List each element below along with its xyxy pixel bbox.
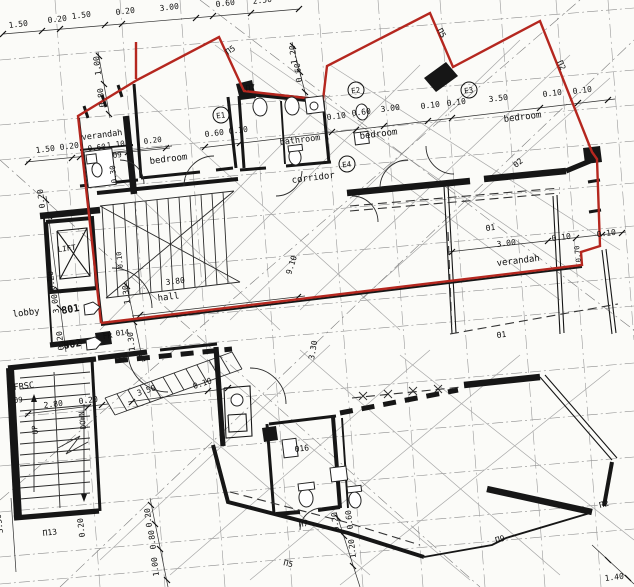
window-code: Π7 (298, 519, 309, 529)
dim: 0.10 (115, 251, 125, 269)
dim: 0.10 (228, 125, 248, 136)
dim: 3.00 (380, 103, 400, 114)
dim: 3.00 (159, 2, 179, 13)
dim: 1.30 (121, 284, 132, 304)
dim: 0.10 (446, 97, 466, 108)
dim: 3.80 (165, 276, 185, 287)
room-verandah-e: verandah (496, 254, 540, 269)
dim: 0.10 (326, 111, 346, 122)
ref-e2: E2 (351, 86, 361, 96)
dim: 0.20 (115, 6, 135, 17)
dim: 1.40 (604, 572, 624, 583)
dim: 1.20 (347, 538, 358, 558)
dim: 0.60 (204, 128, 224, 139)
dim: 1.30 (126, 331, 137, 351)
room-bedroom-2: bedroom (359, 127, 398, 142)
dim: 1.50 (35, 144, 55, 155)
dim: 0.10 (596, 228, 616, 239)
dim: 0.60 (215, 0, 235, 9)
ref-e3: E3 (464, 86, 474, 96)
room-lobby: lobby (12, 307, 41, 320)
dim: 0.60 (344, 509, 355, 529)
dim: 3.00 (496, 238, 516, 249)
room-corridor: corridor (291, 171, 336, 186)
dim: 1.10 (106, 139, 126, 150)
dim: 0.10 (542, 88, 562, 99)
terrace-walls (213, 375, 617, 557)
window-code: Π2 (555, 59, 567, 72)
dim: 0.20 (330, 511, 341, 531)
stair-down: DOWN (77, 411, 88, 430)
window-code: Π13 (42, 527, 58, 538)
window-code: Π5 (283, 558, 295, 569)
dim: 0.10 (420, 100, 440, 111)
floor-plan-sheet: 1.500.201.500.203.000.602.501.000.801.20… (0, 0, 634, 587)
dim: 0.70 (573, 245, 583, 263)
room-bedroom-1: bedroom (149, 152, 188, 167)
dim: 0.10 (551, 232, 571, 243)
dim: 3.30 (307, 340, 319, 361)
door-code: Θ1 (496, 330, 507, 340)
dim: 3.00 (50, 293, 61, 313)
window-code: Π9 (494, 534, 506, 545)
door-code: Θ1 (485, 223, 496, 233)
dim: 0.60 (293, 62, 304, 82)
dim: 3.50 (0, 513, 5, 533)
dim: 2.50 (252, 0, 272, 6)
door-arcs (112, 146, 454, 530)
label-frsc: FRSC (13, 381, 35, 393)
ref-e1: E1 (216, 111, 226, 121)
dim: 0.30 (108, 164, 119, 184)
dim: 9.10 (284, 254, 299, 275)
dim: 0.20 (36, 188, 47, 208)
floor-plan-drawing: 1.500.201.500.203.000.602.501.000.801.20… (0, 0, 634, 587)
ref-e4: E4 (342, 159, 353, 169)
dim: 0.20 (76, 517, 87, 537)
dim: 3.50 (488, 93, 508, 104)
window-code: Π2 (598, 499, 610, 510)
dim: 0.20 (143, 135, 163, 146)
dim: 2.80 (43, 399, 63, 410)
window-code: Π7 (245, 83, 256, 93)
dim: 0.20 (46, 270, 57, 290)
unit-802: 802 (63, 338, 83, 352)
door-code: Θ9 (13, 395, 23, 405)
dim: 0.20 (47, 14, 67, 25)
room-hall: hall (157, 291, 180, 304)
dim: 1.20 (288, 44, 299, 64)
dim: 1.50 (71, 10, 91, 21)
door-code: Θ9 (112, 150, 122, 160)
label-fr: FR (102, 331, 113, 341)
dim: 0.80 (147, 529, 158, 549)
unit-801: 801 (61, 303, 81, 317)
door-code: Θ16 (294, 443, 310, 454)
dim: 0.10 (572, 85, 592, 96)
dim: 1.00 (150, 556, 161, 576)
dim: 0.20 (59, 141, 79, 152)
door-code: Θ2 (512, 156, 525, 169)
stair-up: UP (30, 424, 40, 435)
dim: 1.50 (8, 19, 28, 30)
unit-801-arrow (84, 302, 100, 315)
